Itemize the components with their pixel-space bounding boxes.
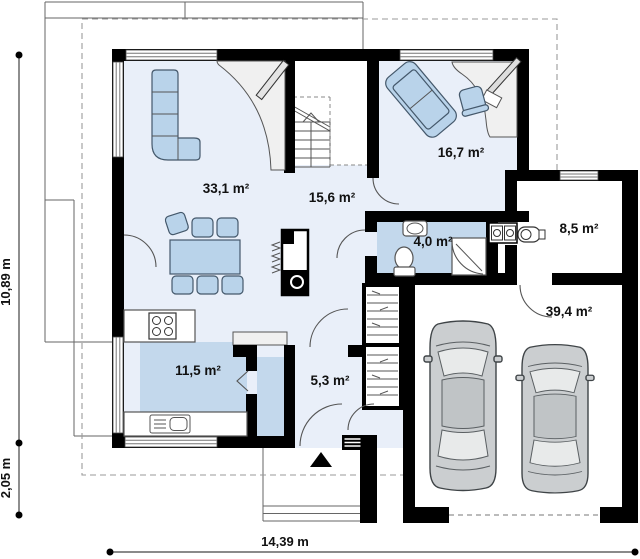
dining-table bbox=[170, 240, 240, 274]
dining-chair bbox=[222, 276, 243, 294]
wall-pantry-left-a bbox=[246, 345, 257, 371]
window-office-top bbox=[400, 50, 493, 60]
wall-garage-left bbox=[403, 285, 415, 523]
wall-office-left bbox=[367, 61, 379, 178]
room-label-office: 16,7 m² bbox=[438, 145, 485, 160]
kitchen-stove bbox=[149, 313, 176, 339]
room-label-bath: 4,0 m² bbox=[413, 234, 453, 249]
dining-set bbox=[164, 211, 243, 294]
wall-utility-left-a bbox=[505, 181, 517, 222]
window-utility bbox=[560, 171, 598, 180]
wall-bath-top bbox=[365, 211, 529, 222]
entrance-arrow bbox=[310, 452, 332, 467]
dim-total-height: 10,89 m bbox=[0, 258, 13, 306]
wall-utility-left-b bbox=[505, 245, 517, 273]
wall-pantry-right bbox=[284, 345, 295, 448]
pantry-floor bbox=[257, 357, 284, 436]
window-living-top bbox=[126, 50, 217, 60]
wall-garage-bottom-right bbox=[600, 507, 638, 523]
wall-bath-left-a bbox=[365, 222, 377, 232]
dining-chair bbox=[172, 276, 193, 294]
dining-chair bbox=[197, 276, 218, 294]
room-label-garage: 39,4 m² bbox=[546, 304, 593, 319]
floor-plan-page: 33,1 m² 15,6 m² 16,7 m² 4,0 m² 8,5 m² 11… bbox=[0, 0, 640, 559]
wall-stair-left bbox=[284, 61, 295, 173]
dim-total-width: 14,39 m bbox=[261, 534, 309, 549]
room-label-living: 33,1 m² bbox=[203, 181, 250, 196]
kitchen-sink bbox=[150, 415, 190, 433]
floor-plan-svg: 33,1 m² 15,6 m² 16,7 m² 4,0 m² 8,5 m² 11… bbox=[0, 0, 640, 559]
window-kitchen-left bbox=[113, 337, 123, 433]
window-kitchen-bottom bbox=[125, 437, 217, 447]
room-label-kitchen: 11,5 m² bbox=[175, 363, 221, 378]
wardrobe-shelves bbox=[362, 283, 403, 410]
dining-chair bbox=[217, 218, 238, 237]
room-label-entry: 5,3 m² bbox=[310, 373, 350, 388]
dim-porch-depth: 2,05 m bbox=[0, 458, 13, 498]
window-living-left bbox=[113, 62, 123, 157]
wall-outer-right bbox=[622, 170, 638, 523]
car-1 bbox=[424, 321, 502, 491]
dining-chair bbox=[192, 218, 213, 237]
wall-hall-stub bbox=[348, 345, 362, 357]
wall-utility-bottom bbox=[552, 273, 638, 285]
toilet bbox=[394, 247, 415, 276]
pantry-lintel bbox=[233, 332, 287, 345]
wall-pantry-left-b bbox=[246, 394, 257, 448]
wall-office-right bbox=[517, 49, 529, 181]
shower-cabin bbox=[452, 238, 486, 275]
porch-steps bbox=[263, 448, 360, 521]
room-label-utility: 8,5 m² bbox=[559, 221, 599, 236]
room-label-hallway: 15,6 m² bbox=[309, 190, 356, 205]
car-2 bbox=[516, 345, 594, 493]
